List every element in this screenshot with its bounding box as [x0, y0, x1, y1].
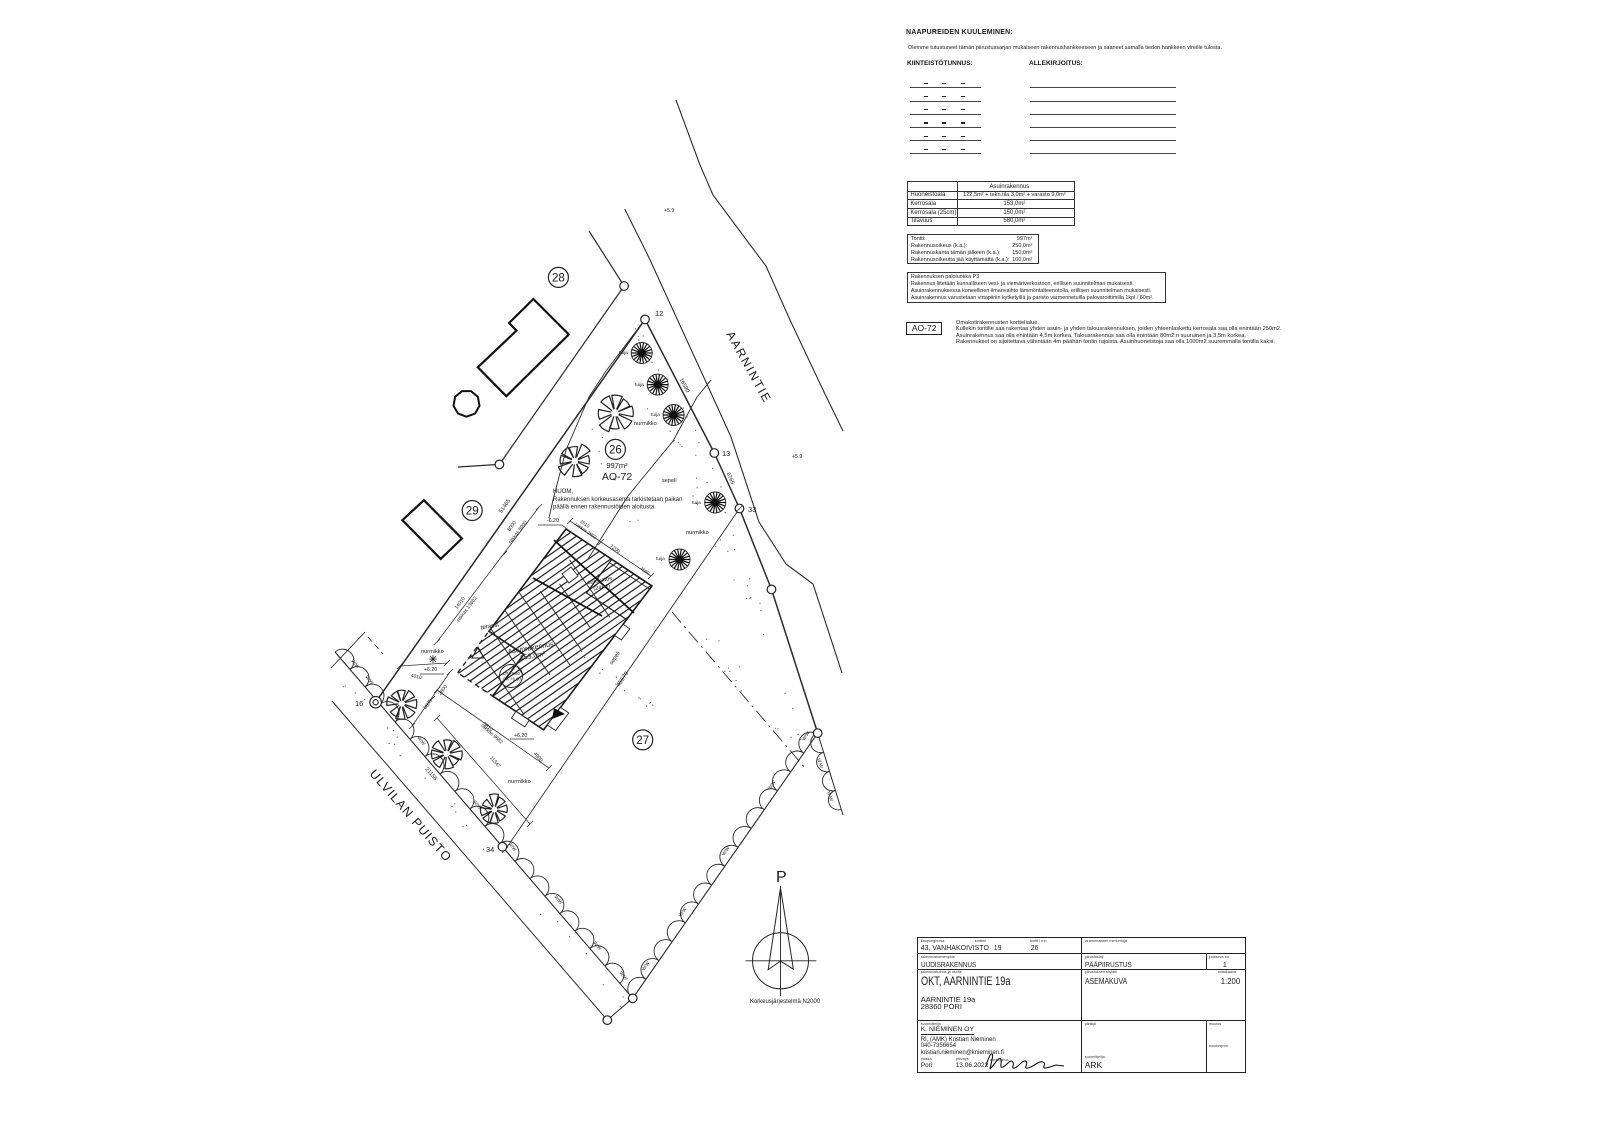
svg-text:26: 26 — [609, 444, 622, 456]
svg-text:tuija: tuija — [651, 412, 660, 418]
svg-text:12: 12 — [655, 309, 663, 318]
svg-text:nurmikko: nurmikko — [686, 530, 709, 536]
svg-text:nurmikko: nurmikko — [634, 421, 657, 427]
svg-text:33: 33 — [748, 505, 756, 514]
svg-text:nurmikko: nurmikko — [508, 779, 531, 785]
svg-text:tuija: tuija — [656, 556, 665, 562]
svg-text:tuija: tuija — [635, 382, 644, 388]
svg-text:34: 34 — [486, 845, 494, 854]
svg-text:sepeli: sepeli — [662, 478, 677, 484]
svg-text:tuija: tuija — [619, 350, 628, 356]
svg-text:päällä ennen rakennustöiden al: päällä ennen rakennustöiden aloitusta. — [553, 505, 656, 511]
svg-text:AO-72: AO-72 — [602, 471, 633, 483]
svg-text:+6.20: +6.20 — [424, 667, 437, 673]
svg-text:LP +6.80: LP +6.80 — [503, 671, 520, 676]
svg-text:16: 16 — [355, 699, 363, 708]
svg-text:P: P — [776, 869, 787, 886]
svg-text:27: 27 — [636, 735, 649, 747]
svg-text:+5.9: +5.9 — [664, 208, 674, 214]
svg-text:Korkeusjärjestelmä N2000: Korkeusjärjestelmä N2000 — [750, 999, 821, 1005]
svg-text:HUOM,: HUOM, — [553, 489, 573, 495]
svg-text:Rakennuksen korkeusasema tarki: Rakennuksen korkeusasema tarkistetaan pa… — [553, 497, 682, 503]
svg-text:-6.20: -6.20 — [547, 518, 559, 524]
svg-text:997m²: 997m² — [606, 461, 628, 470]
svg-text:+5.9: +5.9 — [792, 454, 802, 460]
svg-text:nurmikko: nurmikko — [421, 649, 444, 655]
svg-text:29: 29 — [466, 506, 479, 518]
svg-text:28: 28 — [552, 272, 565, 284]
svg-text:OK +6.60: OK +6.60 — [503, 677, 521, 682]
svg-text:13: 13 — [722, 449, 730, 458]
svg-text:tuija: tuija — [692, 500, 701, 506]
svg-text:+6.20: +6.20 — [514, 733, 527, 739]
